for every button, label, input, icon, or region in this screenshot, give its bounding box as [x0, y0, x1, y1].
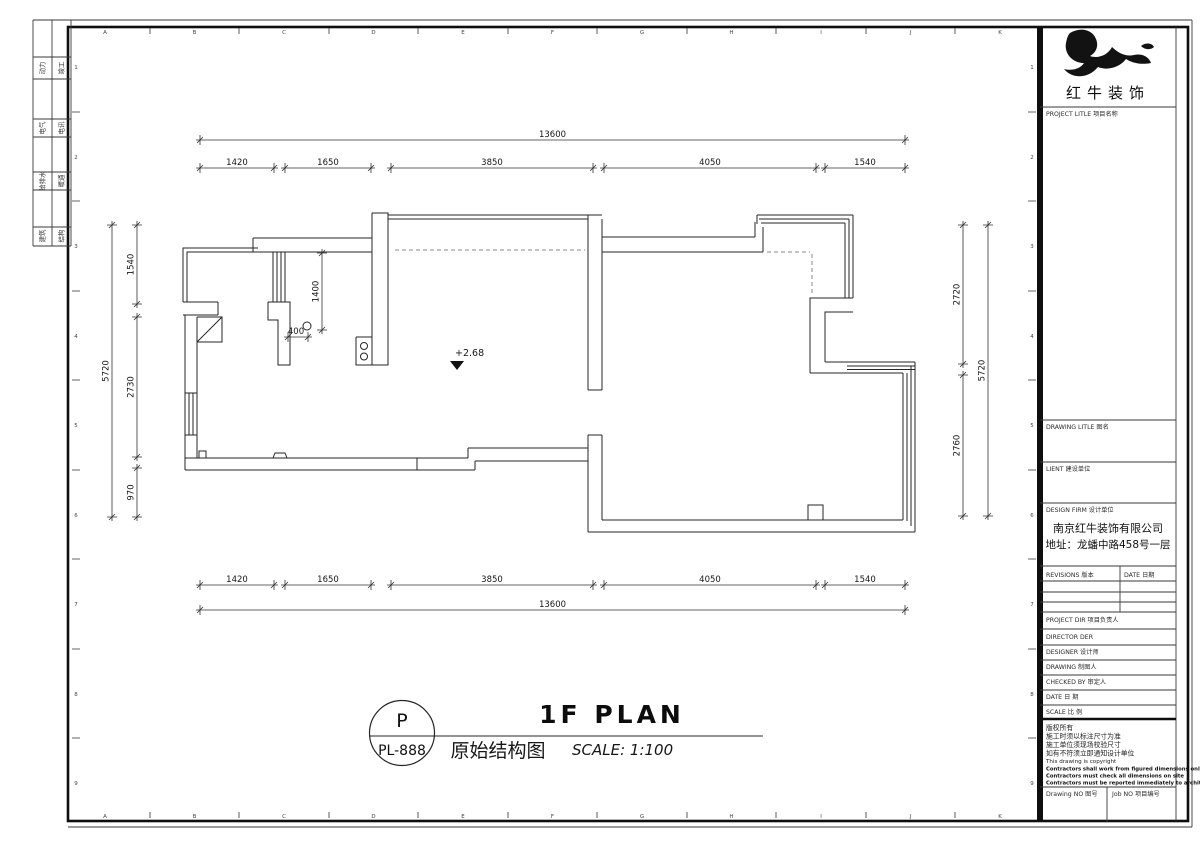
grid-number-right: 3 — [1030, 244, 1034, 250]
drawing-title-en: 1F PLAN — [539, 700, 685, 729]
grid-letter-top: C — [282, 30, 286, 36]
strip-cell: 电气 — [38, 121, 47, 134]
checked-by-label: CHECKED BY 审定人 — [1046, 678, 1106, 686]
grid-letter-bottom: A — [103, 814, 107, 820]
grid-number-left: 2 — [74, 155, 78, 161]
client-label: LIENT 建设单位 — [1046, 465, 1090, 473]
dim-left-segment: 2730 — [127, 376, 137, 398]
title-block: 红牛装饰 PROJECT LITLE 项目名称 DRAWING LITLE 图名… — [1040, 27, 1200, 822]
grid-letter-bottom: J — [909, 814, 912, 820]
job-no-label: Job NO 项目编号 — [1111, 790, 1160, 798]
grid-letter-top: I — [820, 30, 822, 36]
grid-number-right: 9 — [1030, 781, 1034, 787]
dim-interior-1400: 1400 — [312, 281, 322, 303]
grid-letter-bottom: K — [998, 814, 1002, 820]
dimension-lines — [107, 135, 993, 615]
grid-number-left: 6 — [74, 513, 78, 519]
grid-number-left: 5 — [74, 423, 78, 429]
dim-bottom-segment: 4050 — [699, 575, 721, 585]
grid-number-right: 7 — [1030, 602, 1034, 608]
dim-right-overall: 5720 — [978, 360, 988, 382]
pipe-shaft-circle — [361, 353, 368, 360]
copyright-line: 施工单位须现场校验尺寸 — [1046, 740, 1121, 749]
grid-number-right: 4 — [1030, 334, 1034, 340]
dim-bottom-segment: 1420 — [226, 575, 248, 585]
sheet-code-letter: P — [396, 710, 407, 732]
grid-letter-bottom: H — [729, 814, 733, 820]
floor-plan: +2.68 — [183, 213, 915, 532]
sheet-code: PL-888 — [378, 743, 426, 759]
strip-cell: 电讯 — [57, 121, 66, 134]
level-annotation: +2.68 — [455, 348, 484, 359]
grid-letter-bottom: G — [640, 814, 644, 820]
grid-letter-bottom: E — [461, 814, 465, 820]
wall-lines — [183, 213, 915, 532]
grid-number-left: 9 — [74, 781, 78, 787]
dim-top-segment: 4050 — [699, 158, 721, 168]
grid-letter-top: J — [909, 30, 912, 36]
grid-number-left: 3 — [74, 244, 78, 250]
dim-bottom-segment: 3850 — [481, 575, 503, 585]
dim-bottom-segment: 1540 — [854, 575, 876, 585]
date-label: DATE 日 期 — [1046, 693, 1078, 701]
grid-letter-bottom: I — [820, 814, 822, 820]
firm-name: 南京红牛装饰有限公司 — [1053, 521, 1163, 535]
drawing-by-label: DRAWING 制图人 — [1046, 663, 1097, 671]
drawing-canvas: 动力 竣工 电气 电讯 给排水 暖通 建筑 结构 A B C D E F G H… — [0, 0, 1200, 845]
copyright-line: This drawing is copyright — [1045, 759, 1117, 765]
grid-number-left: 4 — [74, 334, 78, 340]
design-firm-label: DESIGN FIRM 设计单位 — [1046, 506, 1114, 514]
dim-right-segment: 2760 — [953, 435, 963, 457]
copyright-line: Contractors must check all dimensions on… — [1046, 774, 1184, 780]
dim-top-segment: 1540 — [854, 158, 876, 168]
dim-bottom-segment: 1650 — [317, 575, 339, 585]
designer-label: DESIGNER 设计师 — [1046, 648, 1099, 656]
discipline-strip: 动力 竣工 电气 电讯 给排水 暖通 建筑 结构 — [33, 20, 71, 246]
grid-letter-top: B — [193, 30, 197, 36]
grid-letter-top: E — [461, 30, 465, 36]
strip-cell: 竣工 — [57, 61, 66, 74]
grid-letter-top: G — [640, 30, 644, 36]
point-marker-circle — [303, 322, 311, 330]
dim-left-overall: 5720 — [102, 360, 112, 382]
brand-name: 红牛装饰 — [1066, 84, 1150, 102]
dim-top-overall: 13600 — [539, 130, 566, 140]
grid-number-left: 1 — [74, 65, 78, 71]
copyright-line: 施工时须以标注尺寸为准 — [1046, 732, 1121, 741]
grid-number-right: 2 — [1030, 155, 1034, 161]
dim-right-segment: 2720 — [953, 284, 963, 306]
date-column-label: DATE 日期 — [1124, 571, 1154, 579]
strip-cell: 结构 — [57, 230, 66, 243]
dim-interior-400: 400 — [288, 327, 304, 337]
grid-number-right: 6 — [1030, 513, 1034, 519]
grid-letter-top: A — [103, 30, 107, 36]
pipe-shaft-circle — [361, 343, 368, 350]
brand-logo — [1064, 30, 1154, 77]
drawing-no-label: Drawing NO 图号 — [1046, 791, 1098, 798]
grid-letter-top: H — [729, 30, 733, 36]
project-title-label: PROJECT LITLE 项目名称 — [1046, 110, 1118, 118]
grid-number-right: 1 — [1030, 65, 1034, 71]
grid-number-left: 8 — [74, 692, 78, 698]
dim-left-segment: 1540 — [127, 254, 137, 276]
firm-address: 地址：龙蟠中路458号一层 — [1045, 538, 1170, 551]
title-bar: P PL-888 1F PLAN 原始结构图 SCALE: 1:100 — [370, 700, 764, 766]
copyright-line: 版权所有 — [1046, 723, 1073, 732]
strip-cell: 建筑 — [38, 229, 47, 242]
drawing-scale: SCALE: 1:100 — [572, 741, 673, 759]
strip-cell: 动力 — [38, 62, 47, 75]
grid-letter-bottom: C — [282, 814, 286, 820]
grid-letter-bottom: F — [551, 814, 554, 820]
level-marker-triangle — [450, 361, 464, 370]
grid-number-right: 5 — [1030, 423, 1034, 429]
cad-sheet: 动力 竣工 电气 电讯 给排水 暖通 建筑 结构 A B C D E F G H… — [0, 0, 1200, 845]
project-director-label: PROJECT DIR 项目负责人 — [1046, 616, 1119, 624]
grid-letter-bottom: B — [193, 814, 197, 820]
copyright-line: Contractors shall work from figured dime… — [1046, 767, 1200, 773]
dim-top-segment: 1650 — [317, 158, 339, 168]
strip-cell: 暖通 — [57, 174, 66, 187]
drawing-title-cn: 原始结构图 — [450, 740, 545, 762]
scale-label: SCALE 比 例 — [1046, 708, 1082, 716]
hidden-beam-lines — [395, 250, 812, 296]
grid-letter-bottom: D — [371, 814, 375, 820]
grid-letter-top: D — [371, 30, 375, 36]
grid-number-left: 7 — [74, 602, 78, 608]
grid-letter-top: K — [998, 30, 1002, 36]
grid-letter-top: F — [551, 30, 554, 36]
dim-left-segment: 970 — [127, 484, 137, 500]
drawing-title-label: DRAWING LITLE 图名 — [1046, 423, 1109, 431]
strip-cell: 给排水 — [38, 171, 47, 191]
director-label: DIRECTOR DER — [1046, 634, 1094, 641]
revisions-label: REVISIONS 版本 — [1046, 571, 1094, 579]
copyright-line: Contractors must be reported immediately… — [1046, 781, 1200, 787]
copyright-line: 如有不符须立即通知设计单位 — [1046, 749, 1135, 758]
dim-top-segment: 3850 — [481, 158, 503, 168]
dim-bottom-overall: 13600 — [539, 600, 566, 610]
dim-top-segment: 1420 — [226, 158, 248, 168]
grid-number-right: 8 — [1030, 692, 1034, 698]
